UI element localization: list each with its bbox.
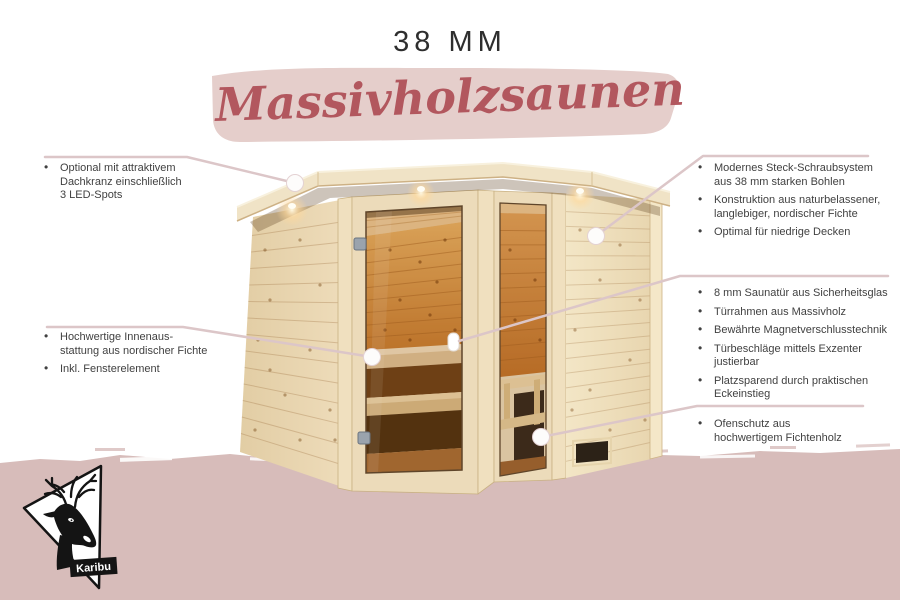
bullet-icon: •: [698, 225, 702, 239]
callout-left-interior: •Hochwertige Innenaus- stattung aus nord…: [44, 331, 234, 377]
door-hinge-top: [354, 238, 366, 250]
bullet-icon: •: [698, 193, 702, 207]
sauna-illustration: [237, 163, 670, 494]
callout-item: •Inkl. Fensterelement: [44, 363, 234, 377]
callout-item: •Türbeschläge mittels Exzenter justierba…: [698, 343, 896, 370]
callout-item: •Bewährte Magnetverschlusstechnik: [698, 324, 896, 338]
callout-item: •Ofenschutz aus hochwertigem Fichtenholz: [698, 418, 896, 445]
corner-trim-right: [650, 199, 662, 459]
bullet-icon: •: [698, 286, 702, 300]
bullet-icon: •: [698, 374, 702, 388]
anchor-dot: [588, 228, 605, 245]
logo-brand-text: Karibu: [76, 561, 112, 575]
window-right-post: [552, 193, 566, 480]
door-window-post: [478, 190, 494, 494]
bullet-icon: •: [698, 161, 702, 175]
callout-right-construction: •Modernes Steck-Schraubsystem aus 38 mm …: [698, 162, 896, 240]
bullet-icon: •: [698, 417, 702, 431]
callout-item: •Optional mit attraktivem Dachkranz eins…: [44, 162, 224, 203]
bullet-icon: •: [698, 323, 702, 337]
bullet-icon: •: [44, 161, 48, 175]
callout-item: •Optimal für niedrige Decken: [698, 226, 896, 240]
anchor-dot: [364, 349, 381, 366]
bullet-icon: •: [698, 305, 702, 319]
door-handle: [448, 333, 459, 351]
callout-item: •8 mm Saunatür aus Sicherheitsglas: [698, 287, 896, 301]
sauna-right-wall: [566, 194, 662, 478]
callout-item: •Konstruktion aus naturbelassener, langl…: [698, 194, 896, 221]
callout-item: •Platzsparend durch praktischen Eckeinst…: [698, 375, 896, 402]
anchor-dot: [533, 429, 550, 446]
door-hinge-bottom: [358, 432, 370, 444]
callout-left-roof: •Optional mit attraktivem Dachkranz eins…: [44, 162, 224, 203]
page-title: 38 MM: [0, 26, 900, 59]
bullet-icon: •: [44, 330, 48, 344]
corner-trim-left: [338, 197, 352, 491]
bullet-icon: •: [698, 342, 702, 356]
callout-item: •Hochwertige Innenaus- stattung aus nord…: [44, 331, 234, 358]
anchor-dot: [287, 175, 304, 192]
vent-opening: [576, 441, 608, 463]
callout-right-door: •8 mm Saunatür aus Sicherheitsglas •Türr…: [698, 287, 896, 402]
callout-item: •Modernes Steck-Schraubsystem aus 38 mm …: [698, 162, 896, 189]
callout-item: •Türrahmen aus Massivholz: [698, 306, 896, 320]
callout-right-oven: •Ofenschutz aus hochwertigem Fichtenholz: [698, 418, 896, 445]
product-sheet: Karibu 38 MM Massivholzsaunen •Optional …: [0, 0, 900, 600]
bullet-icon: •: [44, 362, 48, 376]
